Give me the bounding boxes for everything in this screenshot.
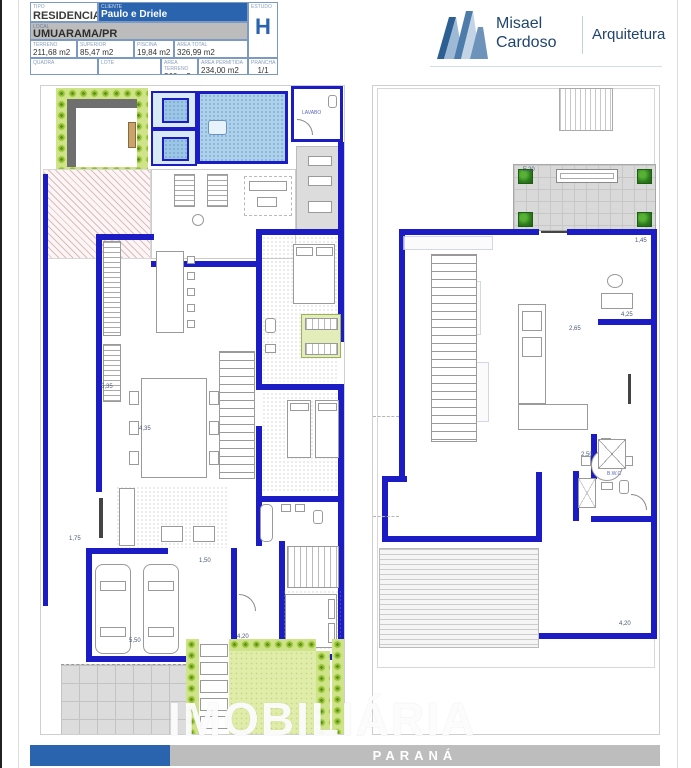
- dim-label: 1,50: [199, 558, 211, 564]
- plan-ground-floor: LAVABO: [40, 85, 345, 735]
- closet-shelf: [305, 318, 338, 330]
- dining-chair: [129, 451, 139, 465]
- wall: [536, 472, 542, 542]
- wall: [598, 319, 657, 325]
- bbq-counter-area: [296, 146, 343, 231]
- gazebo-wall-top: [67, 99, 137, 108]
- footer-region-bar: PARANÁ: [170, 745, 660, 766]
- sun-lounger: [174, 174, 195, 207]
- desk-chair: [607, 274, 623, 288]
- field-area-terreno: AREA TERRENO 360 m2: [161, 58, 198, 75]
- wall: [651, 229, 657, 639]
- wall: [591, 516, 657, 522]
- bar-stool: [187, 304, 195, 312]
- dim-label: 1,75: [69, 536, 81, 542]
- closet-shelf: [305, 343, 338, 355]
- dining-chair: [129, 391, 139, 405]
- dining-chair: [209, 451, 219, 465]
- spa-2: [162, 137, 189, 161]
- dim-label: 4,35: [139, 426, 151, 432]
- armchair: [161, 526, 183, 542]
- floor-plan-sheet: TIPO RESIDENCIAL CLIENTE Paulo e Driele …: [0, 0, 691, 768]
- wall: [96, 234, 154, 240]
- armchair: [193, 526, 215, 542]
- field-area-permitida-label: AREA PERMITIDA: [199, 59, 247, 66]
- car-rear-window: [100, 627, 126, 637]
- pillow: [316, 247, 333, 256]
- footer-blue-bar: [30, 745, 170, 766]
- watermark-text: IMOBILIÁRIA: [168, 692, 588, 746]
- dim-label: 1,45: [635, 238, 647, 244]
- single-bed: [315, 400, 339, 458]
- deck-table: [192, 214, 204, 226]
- toilet: [265, 318, 276, 333]
- spa-room-2: [151, 129, 197, 166]
- sink: [265, 344, 276, 353]
- dim-label: 5,50: [129, 638, 141, 644]
- wall: [256, 384, 344, 390]
- pillow: [296, 247, 313, 256]
- field-superior-label: SUPERIOR: [78, 41, 133, 48]
- hedge-row: [229, 639, 316, 651]
- lavabo-door: [297, 119, 313, 135]
- car-windshield: [148, 581, 174, 591]
- gazebo-floor: [67, 99, 137, 167]
- field-estudo-value: H: [249, 10, 277, 44]
- single-bed: [287, 400, 311, 458]
- bathtub: [260, 504, 273, 542]
- field-estudo-label: ESTUDO: [249, 3, 277, 10]
- bar-stool: [187, 256, 195, 264]
- double-bed: [293, 244, 335, 304]
- logo-divider: [582, 16, 583, 54]
- bbq-grill: [308, 176, 332, 186]
- car: [143, 564, 179, 654]
- field-terreno-label: TERRENO: [31, 41, 76, 48]
- roof-hatch: [379, 548, 539, 648]
- bar-stool: [187, 320, 195, 328]
- field-area-total-value: 326,99 m2: [175, 48, 247, 57]
- gazebo-wall-left: [67, 99, 76, 167]
- wall: [567, 229, 657, 235]
- dim-label: 5,20: [523, 167, 535, 173]
- field-local-value: UMUARAMA/PR: [31, 30, 247, 39]
- field-prancha: PRANCHA 1/1: [248, 58, 278, 75]
- plant: [518, 212, 533, 227]
- field-area-permitida-value: 234,00 m2: [199, 66, 247, 75]
- closet-green: [301, 314, 341, 358]
- shaft-hatch: [578, 478, 596, 508]
- toilet: [619, 480, 629, 494]
- kitchen-cabinets: [103, 241, 121, 336]
- wall: [86, 656, 186, 662]
- logo-block: Misael Cardoso Arquitetura: [430, 4, 662, 67]
- frame-line-left: [18, 0, 19, 768]
- field-area-permitida: AREA PERMITIDA 234,00 m2: [198, 58, 248, 75]
- field-prancha-value: 1/1: [249, 66, 277, 75]
- toilet: [313, 510, 323, 524]
- plant: [637, 169, 652, 184]
- tv-panel: [628, 374, 631, 404]
- stone: [200, 662, 228, 675]
- wall: [536, 633, 657, 639]
- dim-label: 4,25: [621, 312, 633, 318]
- ghost-line: [373, 416, 399, 417]
- plant: [637, 212, 652, 227]
- wall: [96, 234, 102, 492]
- field-prancha-label: PRANCHA: [249, 59, 277, 66]
- logo-first-name: Misael: [496, 14, 556, 33]
- bwc-label: B.W.C: [607, 472, 621, 477]
- tv-panel: [99, 498, 103, 538]
- desk: [601, 293, 633, 309]
- field-local: LOCAL UMUARAMA/PR: [30, 22, 248, 40]
- outdoor-sofa: [249, 181, 287, 191]
- ghost-line: [373, 516, 399, 517]
- dim-label: 4,20: [237, 634, 249, 640]
- pillow: [290, 403, 309, 411]
- lavabo-toilet: [328, 95, 337, 108]
- field-lote-label: LOTE: [99, 59, 160, 66]
- sofa-cushion: [522, 311, 542, 331]
- ghost-counter: [403, 236, 493, 250]
- spa-room-1: [151, 91, 197, 129]
- bar-stool: [187, 272, 195, 280]
- media-cabinet: [119, 488, 135, 546]
- bbq-sink: [308, 156, 332, 166]
- outdoor-table: [257, 197, 277, 207]
- field-piscina: PISCINA 19,84 m2: [134, 40, 174, 58]
- logo-last-name: Cardoso: [496, 33, 556, 52]
- lounge-area: [244, 176, 292, 216]
- field-cliente: CLIENTE Paulo e Driele: [98, 2, 248, 22]
- title-block: TIPO RESIDENCIAL CLIENTE Paulo e Driele …: [30, 2, 278, 75]
- field-superior: SUPERIOR 85,47 m2: [77, 40, 134, 58]
- spa-1: [162, 98, 189, 123]
- kitchen-island: [156, 251, 184, 333]
- wall: [399, 229, 405, 479]
- dim-label: 2,65: [569, 326, 581, 332]
- field-estudo: ESTUDO H: [248, 2, 278, 58]
- field-tipo-label: TIPO: [31, 3, 97, 10]
- wall: [338, 142, 344, 342]
- boundary-wall-left: [43, 174, 48, 606]
- field-cliente-value: Paulo e Driele: [99, 10, 247, 19]
- field-tipo-value: RESIDENCIAL: [31, 10, 97, 22]
- sofa: [518, 304, 546, 404]
- lavabo-room: LAVABO: [291, 86, 343, 142]
- field-area-total: AREA TOTAL 326,99 m2: [174, 40, 248, 58]
- field-piscina-label: PISCINA: [135, 41, 173, 48]
- pillow: [328, 599, 335, 619]
- field-quadra-label: QUADRA: [31, 59, 97, 66]
- kitchen-cabinets: [103, 344, 121, 402]
- logo-name: Misael Cardoso: [496, 14, 556, 52]
- roof-terrace: [513, 164, 656, 231]
- field-area-total-label: AREA TOTAL: [175, 41, 247, 48]
- gazebo-bench: [128, 122, 136, 148]
- shaft-hatch: [598, 439, 626, 469]
- dining-chair: [209, 391, 219, 405]
- dim-label: 4,20: [619, 621, 631, 627]
- plan-upper-floor: B.W.C 5,20 2,65 4,25 2,50 4,20 1,45: [372, 85, 660, 735]
- field-area-terreno-label: AREA TERRENO: [162, 59, 197, 72]
- wall: [399, 229, 539, 235]
- dining-chair: [209, 421, 219, 435]
- left-edge-strip: [0, 0, 2, 768]
- field-quadra: QUADRA: [30, 58, 98, 75]
- pergola-hatch: [559, 88, 613, 131]
- field-superior-value: 85,47 m2: [78, 48, 133, 57]
- stone: [200, 644, 228, 657]
- car: [95, 564, 131, 654]
- bbq-bench: [308, 201, 332, 213]
- master-closet: [287, 546, 339, 588]
- car-rear-window: [148, 627, 174, 637]
- sink: [601, 482, 613, 490]
- logo-mark-icon: [436, 10, 492, 60]
- dim-label: 5,35: [101, 384, 113, 390]
- terrace-bench: [556, 169, 618, 183]
- car-windshield: [100, 581, 126, 591]
- sofa-chaise: [518, 404, 588, 430]
- door-lintel: [541, 231, 567, 233]
- bar-stool: [187, 288, 195, 296]
- pool-hydro-seat: [208, 120, 227, 135]
- wall: [256, 496, 344, 502]
- wall: [86, 548, 92, 659]
- field-lote: LOTE: [98, 58, 161, 75]
- sofa-cushion: [522, 337, 542, 357]
- logo-tagline: Arquitetura: [592, 26, 665, 43]
- wall: [382, 476, 388, 542]
- sun-lounger: [207, 174, 228, 207]
- sink: [281, 504, 291, 512]
- field-piscina-value: 19,84 m2: [135, 48, 173, 57]
- field-terreno-value: 211,68 m2: [31, 48, 76, 57]
- pool: [197, 91, 288, 164]
- field-area-terreno-value: 360 m2: [162, 72, 197, 75]
- stairs: [219, 351, 255, 479]
- dining-chair: [129, 421, 139, 435]
- dim-label: 2,50: [581, 452, 593, 458]
- wall: [86, 548, 168, 554]
- frame-line-right: [677, 0, 678, 768]
- pillow: [318, 403, 337, 411]
- sink: [295, 504, 305, 512]
- hall-door: [239, 594, 256, 611]
- lavabo-label: LAVABO: [302, 111, 321, 116]
- field-tipo: TIPO RESIDENCIAL: [30, 2, 98, 22]
- wall: [256, 229, 344, 235]
- wall: [382, 536, 542, 542]
- field-terreno: TERRENO 211,68 m2: [30, 40, 77, 58]
- stairs: [431, 254, 477, 442]
